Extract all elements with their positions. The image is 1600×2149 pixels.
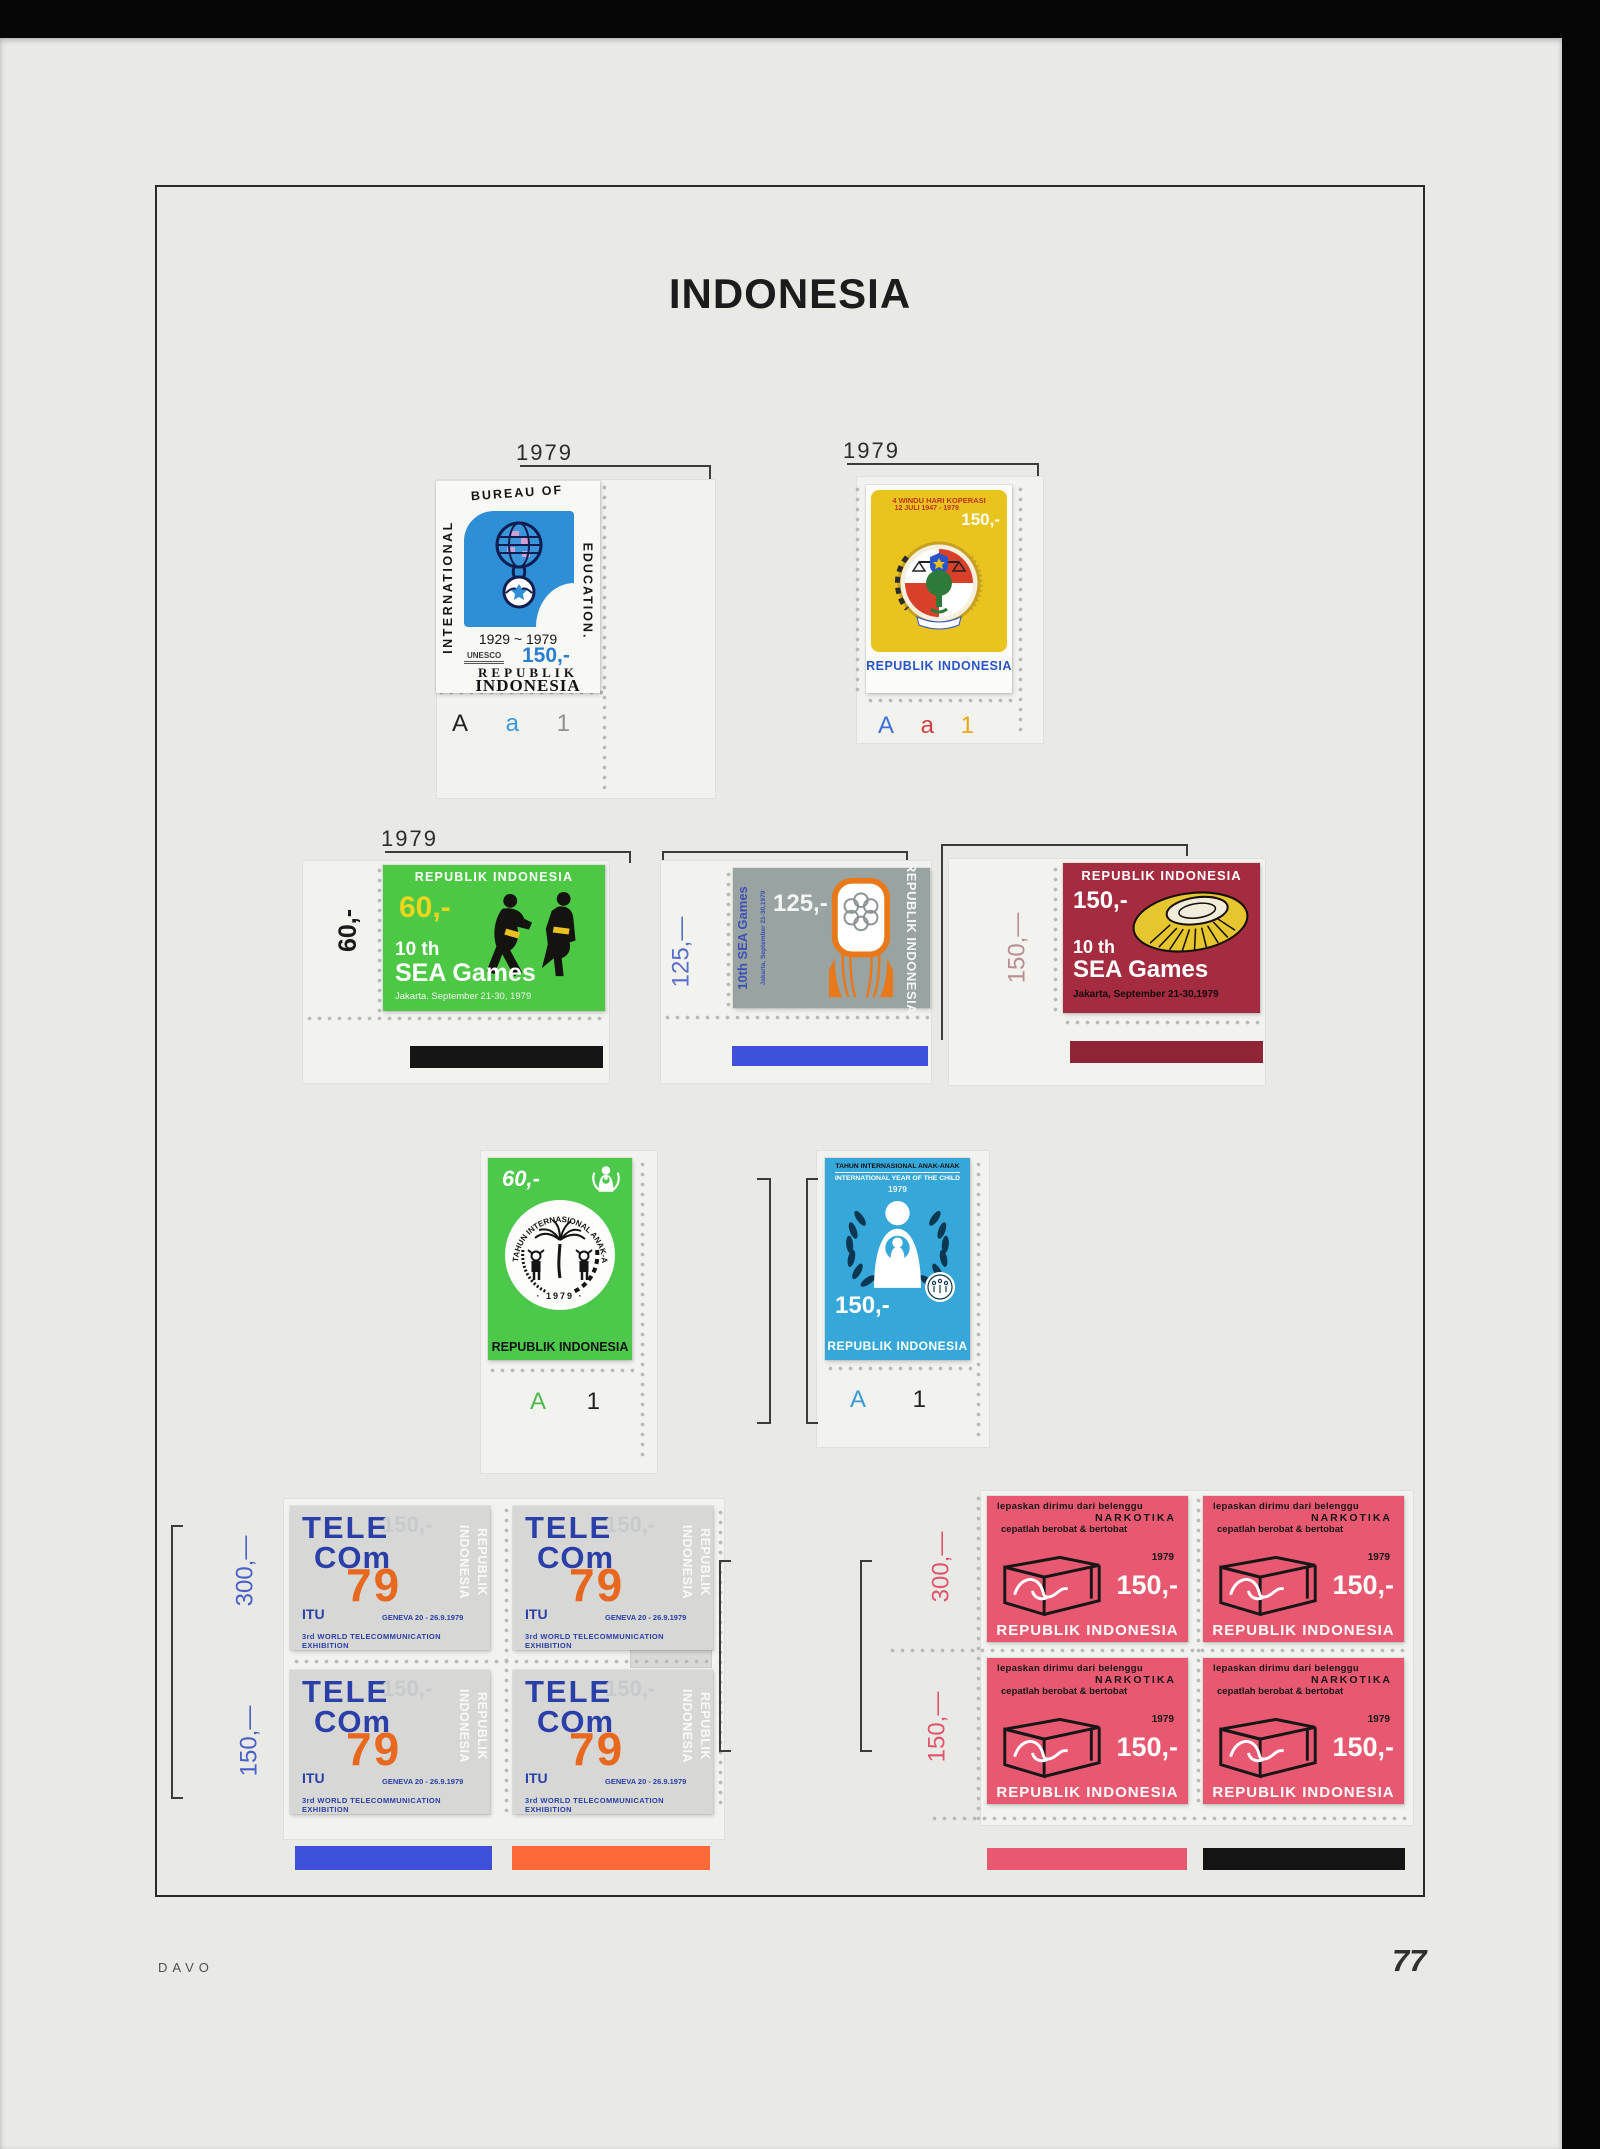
- plate-letter: A: [878, 712, 894, 740]
- perforation: [826, 1364, 972, 1373]
- bracket-line: [757, 1422, 769, 1424]
- stamp-narkotika: lepaskan dirimu dari belenggu NARKOTIKA …: [1203, 1496, 1404, 1642]
- stamp-text: ITU: [525, 1770, 548, 1786]
- stamp-country: REPUBLIK INDONESIA: [1203, 1622, 1404, 1639]
- stamp-telecom-79: TELE COm 150,- REPUBLIKINDONESIA 79 ITU …: [290, 1670, 490, 1814]
- plate-markings: A 1: [850, 1386, 926, 1414]
- bracket-line: [719, 1560, 731, 1562]
- perforation: [292, 1657, 714, 1666]
- bracket-line: [860, 1750, 872, 1752]
- publisher-label: DAVO: [158, 1960, 214, 1975]
- stamp-text: GENEVA 20 - 26.9.1979: [382, 1613, 463, 1622]
- stamp-value: 125,-: [773, 890, 828, 918]
- color-check-bar-black: [410, 1046, 603, 1068]
- stamp-value: 60,-: [399, 891, 451, 925]
- margin-price-label: 300,—: [924, 1521, 958, 1613]
- perforation: [1063, 1018, 1263, 1027]
- stamp-text: cepatlah berobat & bertobat: [1217, 1524, 1343, 1535]
- perforation: [930, 1814, 1408, 1823]
- stamp-text: 4 WINDU HARI KOPERASI: [871, 496, 1007, 505]
- koperasi-emblem-icon: [889, 530, 989, 642]
- iyc-emblem-small-icon: [588, 1164, 624, 1194]
- stamp-value: 150,-: [961, 510, 1000, 530]
- stamp-year-big: 79: [346, 1558, 401, 1612]
- stamp-text: GENEVA 20 - 26.9.1979: [605, 1777, 686, 1786]
- album-paper: INDONESIA 1979 INTERNATIONAL BUREAU OF E…: [0, 38, 1562, 2149]
- stamp-text: NARKOTIKA: [1095, 1674, 1176, 1686]
- color-check-bar-pink: [987, 1848, 1187, 1870]
- plate-markings: A 1: [530, 1388, 600, 1416]
- stamp-country: REPUBLIK INDONESIA: [383, 870, 605, 884]
- stamp-value: 150,-: [605, 1512, 655, 1538]
- stamp-text: ITU: [302, 1606, 325, 1622]
- stamp-telecom-79: TELE COm 150,- REPUBLIKINDONESIA 79 ITU …: [290, 1506, 490, 1650]
- stamp-sea-games-60: REPUBLIK INDONESIA 60,- 10 th SEA Games …: [383, 865, 605, 1011]
- perforation: [488, 1366, 634, 1375]
- stamp-text: ITU: [525, 1606, 548, 1622]
- bracket-line: [520, 465, 711, 467]
- bracket-line: [171, 1797, 183, 1799]
- margin-price-label: 125,—: [664, 906, 698, 998]
- perforation: [663, 1013, 929, 1022]
- stamp-value: 150,-: [1116, 1570, 1178, 1601]
- stamp-text: lepaskan dirimu dari belenggu: [1213, 1501, 1359, 1512]
- bracket-line: [769, 1178, 771, 1424]
- perforation: [1016, 485, 1025, 737]
- stamp-narkotika: lepaskan dirimu dari belenggu NARKOTIKA …: [987, 1496, 1188, 1642]
- bracket-line: [860, 1560, 872, 1562]
- color-check-bar-dark-red: [1070, 1041, 1263, 1063]
- bracket-line: [1186, 844, 1188, 856]
- stamp-country: REPUBLIK INDONESIA: [866, 659, 1012, 673]
- sea-games-rings-icon: [829, 874, 893, 1000]
- bracket-line: [860, 1560, 862, 1752]
- plate-letter: A: [452, 710, 468, 738]
- stamp-year-big: 79: [569, 1722, 624, 1776]
- stamp-year: 1979: [1152, 1552, 1174, 1563]
- svg-text:· 1979 ·: · 1979 ·: [536, 1291, 583, 1301]
- bracket-line: [757, 1178, 769, 1180]
- bracket-line: [719, 1750, 731, 1752]
- stamp-text: cepatlah berobat & bertobat: [1001, 1524, 1127, 1535]
- stamp-text: GENEVA 20 - 26.9.1979: [605, 1613, 686, 1622]
- bracket-line: [629, 851, 631, 863]
- stamp-value: 150,-: [1116, 1732, 1178, 1763]
- stamp-year-big: 79: [569, 1558, 624, 1612]
- perforation: [853, 485, 862, 697]
- stamp-country: REPUBLIK INDONESIA: [1203, 1784, 1404, 1801]
- stamp-text: 10 th: [1073, 937, 1115, 958]
- stamp-text: GENEVA 20 - 26.9.1979: [382, 1777, 463, 1786]
- palm-emblem-circle: TAHUN INTERNASIONAL ANAK-ANAK: [505, 1200, 615, 1310]
- perforation: [888, 1646, 1408, 1655]
- stamp-year-of-child-150: TAHUN INTERNASIONAL ANAK-ANAK INTERNATIO…: [825, 1158, 970, 1360]
- svg-text:TAHUN INTERNASIONAL ANAK-ANAK: TAHUN INTERNASIONAL ANAK-ANAK: [505, 1200, 609, 1264]
- stamp-country: REPUBLIK INDONESIA: [488, 1340, 632, 1354]
- bracket-line: [719, 1560, 721, 1752]
- stamp-value: 150,-: [605, 1676, 655, 1702]
- stamp-text: lepaskan dirimu dari belenggu: [997, 1663, 1143, 1674]
- unesco-logo: UNESCO: [464, 651, 504, 664]
- plate-letter: a: [921, 712, 934, 740]
- perforation: [974, 1494, 983, 1820]
- crest-small-icon: [923, 1270, 957, 1304]
- margin-price-label: 300,—: [228, 1523, 262, 1618]
- stamp-value: 150,-: [382, 1512, 432, 1538]
- stamp-text-vertical: 10th SEA Games Jakarta, September 21-30,…: [733, 868, 771, 1008]
- stamp-value: 150,-: [1073, 887, 1128, 915]
- plate-letter: A: [530, 1388, 546, 1416]
- bracket-line: [941, 844, 1188, 846]
- stamp-country: REPUBLIK INDONESIA: [987, 1622, 1188, 1639]
- stamp-value: 150,-: [1332, 1570, 1394, 1601]
- bracket-line: [171, 1525, 173, 1799]
- stamp-bureau-of-education: INTERNATIONAL BUREAU OF EDUCATION.: [436, 481, 600, 693]
- bracket-line: [806, 1422, 818, 1424]
- stamp-country-vertical: REPUBLIKINDONESIA: [456, 1510, 490, 1614]
- stamp-text: SEA Games: [1073, 956, 1208, 984]
- margin-price-label: 150,—: [920, 1681, 954, 1773]
- page-title: INDONESIA: [155, 270, 1425, 318]
- stamp-text: 3rd WORLD TELECOMMUNICATION EXHIBITION: [525, 1796, 713, 1814]
- stamp-value: 60,-: [502, 1166, 540, 1192]
- stamp-text: TAHUN INTERNASIONAL ANAK-ANAK: [835, 1163, 960, 1173]
- stamp-text: NARKOTIKA: [1095, 1512, 1176, 1524]
- plate-letter: 1: [587, 1388, 600, 1416]
- cube-icon: [993, 1538, 1111, 1624]
- perforation: [305, 1014, 605, 1023]
- stamp-text-vertical: EDUCATION.: [574, 495, 600, 687]
- margin-price-label: 150,—: [1000, 888, 1034, 1008]
- cube-icon: [1209, 1538, 1327, 1624]
- bracket-line: [847, 463, 1039, 465]
- plate-letter: 1: [913, 1386, 926, 1414]
- stamp-year: 1979: [1368, 1552, 1390, 1563]
- scanned-album-page: INDONESIA 1979 INTERNATIONAL BUREAU OF E…: [0, 0, 1600, 2149]
- stamp-text: INTERNATIONAL YEAR OF THE CHILD: [825, 1175, 970, 1182]
- stamp-sea-games-125: 10th SEA Games Jakarta, September 21-30,…: [733, 868, 930, 1008]
- stamp-country-vertical: REPUBLIKINDONESIA: [679, 1674, 713, 1778]
- year-label-sea-games: 1979: [381, 826, 438, 852]
- stamp-country-vertical: REPUBLIKINDONESIA: [679, 1510, 713, 1614]
- margin-price-label: 60,-: [332, 890, 366, 970]
- color-check-bar-blue: [295, 1846, 492, 1870]
- stamp-text: NARKOTIKA: [1311, 1674, 1392, 1686]
- stamp-year: 1979: [1152, 1714, 1174, 1725]
- stamp-text: ITU: [302, 1770, 325, 1786]
- stamp-year-of-child-60: 60,- TAHUN INTERNASIONAL ANAK-ANAK: [488, 1158, 632, 1360]
- plate-markings: A a 1: [878, 712, 974, 740]
- bracket-line: [171, 1525, 183, 1527]
- stamp-telecom-79: TELE COm 150,- REPUBLIKINDONESIA 79 ITU …: [513, 1670, 713, 1814]
- stamp-koperasi: 4 WINDU HARI KOPERASI 12 JULI 1947 - 197…: [866, 485, 1012, 693]
- plate-letter: 1: [961, 712, 974, 740]
- stamp-text: NARKOTIKA: [1311, 1512, 1392, 1524]
- stamp-narkotika: lepaskan dirimu dari belenggu NARKOTIKA …: [987, 1658, 1188, 1804]
- stamp-text: 3rd WORLD TELECOMMUNICATION EXHIBITION: [302, 1632, 490, 1650]
- stamp-text: cepatlah berobat & bertobat: [1001, 1686, 1127, 1697]
- stamp-text-vertical: INTERNATIONAL: [434, 485, 462, 689]
- color-check-bar-blue: [732, 1046, 928, 1066]
- perforation: [1051, 865, 1060, 1015]
- stamp-value: 150,-: [835, 1292, 890, 1320]
- year-label-education: 1979: [516, 440, 573, 466]
- perforation: [974, 1160, 983, 1440]
- color-check-bar-black: [1203, 1848, 1405, 1870]
- plate-letter: A: [850, 1386, 866, 1414]
- stamp-year: 1979: [1368, 1714, 1390, 1725]
- color-check-bar-orange: [512, 1846, 710, 1870]
- perforation: [638, 1160, 647, 1460]
- margin-price-label: 150,—: [232, 1683, 266, 1798]
- stamp-text: Jakarta. September 21-30, 1979: [395, 991, 531, 1002]
- plate-markings: A a 1: [452, 710, 570, 738]
- stamp-country-vertical: REPUBLIKINDONESIA: [456, 1674, 490, 1778]
- stamp-narkotika: lepaskan dirimu dari belenggu NARKOTIKA …: [1203, 1658, 1404, 1804]
- bracket-line: [385, 851, 631, 853]
- bracket-line: [941, 844, 943, 1040]
- stamp-graphic-panel: [464, 511, 574, 627]
- palm-emblem-icon: TAHUN INTERNASIONAL ANAK-ANAK: [505, 1200, 615, 1310]
- stamp-text: 3rd WORLD TELECOMMUNICATION EXHIBITION: [302, 1796, 490, 1814]
- stamp-country-vertical: REPUBLIK INDONESIA: [896, 868, 928, 1008]
- plate-letter: 1: [557, 710, 570, 738]
- stamp-text: 1979: [825, 1184, 970, 1194]
- cube-icon: [993, 1700, 1111, 1786]
- stamp-country: INDONESIA: [460, 678, 596, 694]
- stamp-text: SEA Games: [395, 959, 536, 988]
- bracket-line: [806, 1178, 818, 1180]
- stamp-text: Jakarta, September 21-30,1979: [1073, 989, 1219, 1000]
- perforation: [600, 483, 609, 793]
- stadium-icon: [1127, 881, 1255, 963]
- stamp-text: BUREAU OF: [460, 482, 575, 504]
- cube-icon: [1209, 1700, 1327, 1786]
- stamp-text: 3rd WORLD TELECOMMUNICATION EXHIBITION: [525, 1632, 713, 1650]
- stamp-country: REPUBLIK INDONESIA: [987, 1784, 1188, 1801]
- stamp-text: 10 th: [395, 939, 439, 961]
- perforation: [724, 870, 733, 1010]
- stamp-value: 150,-: [1332, 1732, 1394, 1763]
- plate-letter: a: [506, 710, 519, 738]
- year-label-koperasi: 1979: [843, 438, 900, 464]
- page-number: 77: [1392, 1943, 1426, 1979]
- stamp-sea-games-150: REPUBLIK INDONESIA 150,- 10 th: [1063, 863, 1260, 1013]
- stamp-country: REPUBLIK INDONESIA: [825, 1339, 970, 1353]
- globe-icon: [484, 517, 554, 612]
- bracket-line: [806, 1178, 808, 1424]
- stamp-text: lepaskan dirimu dari belenggu: [1213, 1663, 1359, 1674]
- stamp-year-big: 79: [346, 1722, 401, 1776]
- bracket-line: [662, 851, 908, 853]
- stamp-graphic-panel: 4 WINDU HARI KOPERASI 12 JULI 1947 - 197…: [871, 490, 1007, 652]
- stamp-text: cepatlah berobat & bertobat: [1217, 1686, 1343, 1697]
- stamp-value: 150,-: [382, 1676, 432, 1702]
- stamp-text: lepaskan dirimu dari belenggu: [997, 1501, 1143, 1512]
- stamp-telecom-79: TELE COm 150,- REPUBLIKINDONESIA 79 ITU …: [513, 1506, 713, 1650]
- perforation: [866, 696, 1016, 705]
